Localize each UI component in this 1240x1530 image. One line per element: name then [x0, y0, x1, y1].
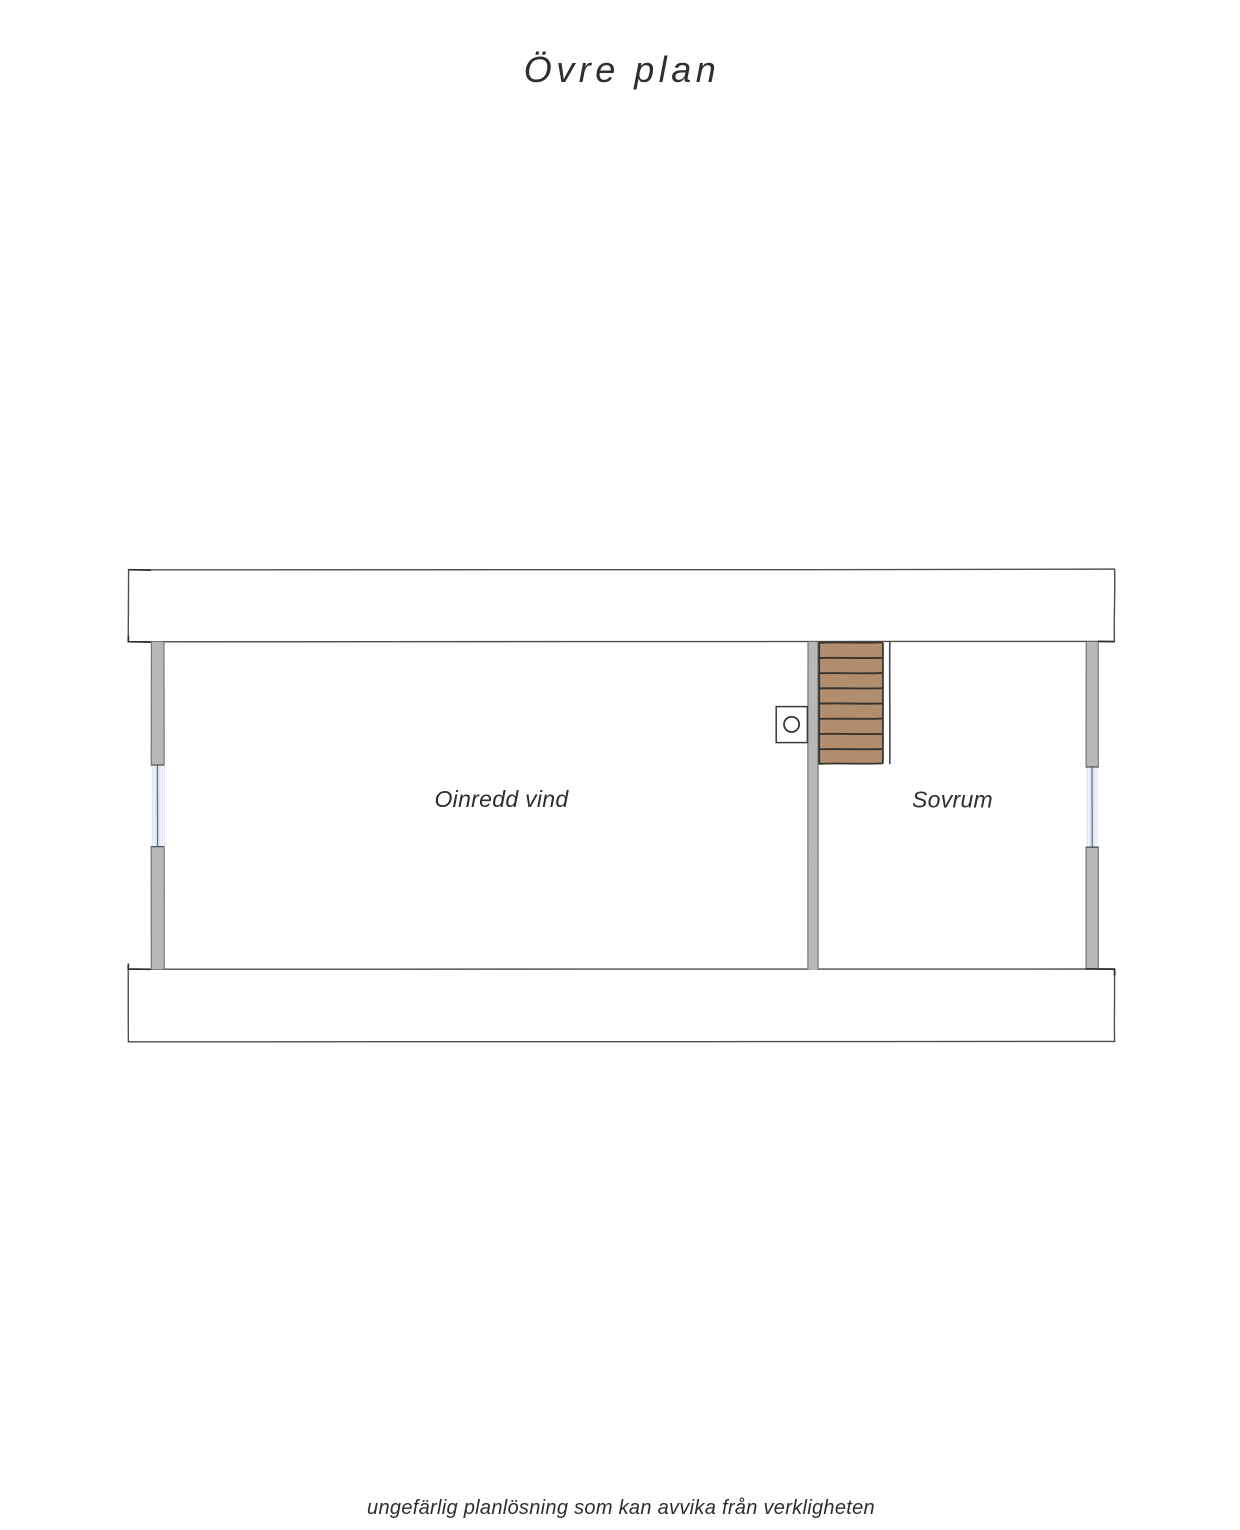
svg-text:Oinredd vind: Oinredd vind: [434, 786, 569, 812]
svg-text:Sovrum: Sovrum: [912, 787, 993, 813]
svg-text:Övre plan: Övre plan: [524, 49, 721, 90]
svg-text:ungefärlig planlösning som kan: ungefärlig planlösning som kan avvika fr…: [367, 1497, 875, 1519]
